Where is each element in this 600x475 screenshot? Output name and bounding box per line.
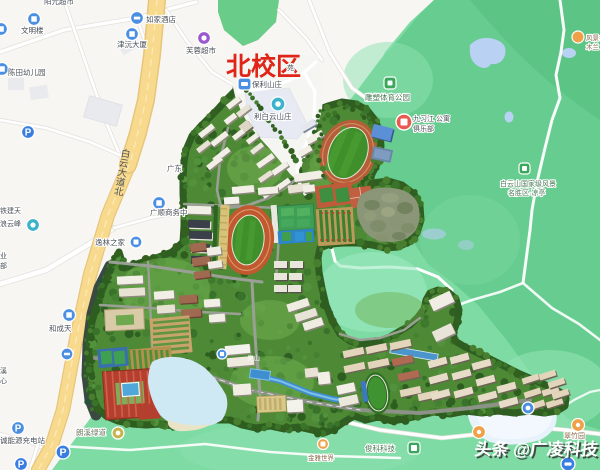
svg-text:头条 @广凌科技: 头条 @广凌科技 xyxy=(474,439,600,459)
svg-text:铁建天: 铁建天 xyxy=(0,206,21,215)
svg-text:部: 部 xyxy=(0,261,7,270)
svg-text:业: 业 xyxy=(0,251,7,260)
svg-text:溪: 溪 xyxy=(0,366,7,375)
svg-text:P: P xyxy=(59,447,66,459)
svg-text:九习江 公寓: 九习江 公寓 xyxy=(413,114,450,123)
svg-text:P: P xyxy=(15,423,22,434)
svg-text:利白云山庄: 利白云山庄 xyxy=(254,111,292,121)
svg-text:保利山庄: 保利山庄 xyxy=(252,79,282,89)
svg-text:P: P xyxy=(25,127,32,138)
svg-text:和成天: 和成天 xyxy=(49,323,72,333)
svg-text:白云山国家级风景: 白云山国家级风景 xyxy=(500,179,556,188)
svg-text:芙蓉超市: 芙蓉超市 xyxy=(186,45,216,55)
svg-text:心: 心 xyxy=(0,377,7,385)
svg-text:苑: 苑 xyxy=(287,63,294,72)
svg-text:P: P xyxy=(18,459,25,470)
svg-text:津沅大厦: 津沅大厦 xyxy=(117,39,147,49)
svg-text:浪云峰: 浪云峰 xyxy=(0,219,21,228)
svg-text:诚能源充电站: 诚能源充电站 xyxy=(0,435,45,445)
svg-text:朗溪绿道: 朗溪绿道 xyxy=(76,427,106,437)
svg-text:陈田幼儿园: 陈田幼儿园 xyxy=(8,67,46,77)
svg-text:俱乐部: 俱乐部 xyxy=(413,124,434,133)
svg-text:翠竹园: 翠竹园 xyxy=(564,431,585,440)
svg-text:逸林之家: 逸林之家 xyxy=(95,237,125,247)
svg-text:奥山: 奥山 xyxy=(247,353,260,362)
svg-text:广东: 广东 xyxy=(167,163,182,173)
svg-text:如家酒店: 如家酒店 xyxy=(146,14,176,24)
svg-text:风景名: 风景名 xyxy=(586,33,600,42)
svg-text:木兰: 木兰 xyxy=(586,42,600,51)
svg-text:名胜区·凉亭: 名胜区·凉亭 xyxy=(508,188,545,197)
svg-text:阳元超市: 阳元超市 xyxy=(44,0,74,6)
svg-text:俊科科技: 俊科科技 xyxy=(365,443,395,453)
svg-text:雕塑体育公园: 雕塑体育公园 xyxy=(365,92,410,102)
svg-text:文明楼: 文明楼 xyxy=(21,25,44,35)
svg-text:金雅世界: 金雅世界 xyxy=(308,453,335,462)
svg-text:广顺商务中: 广顺商务中 xyxy=(150,207,188,217)
